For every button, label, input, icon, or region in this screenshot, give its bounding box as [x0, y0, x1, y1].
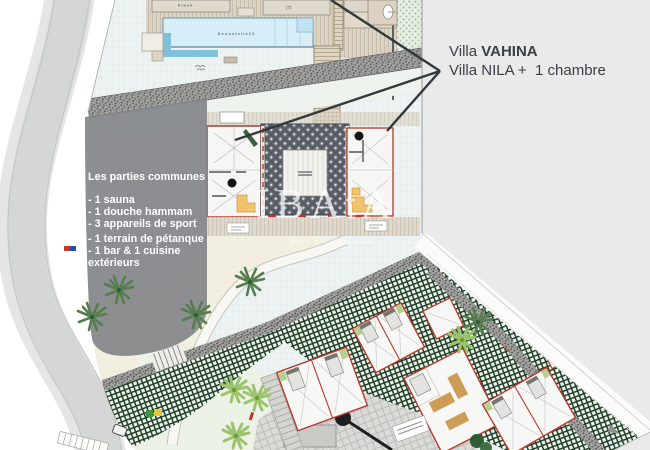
svg-text:Villa NILA + 1 chambre: Villa NILA + 1 chambre [449, 62, 606, 79]
svg-text:D e c o s t e l l e 2 3: D e c o s t e l l e 2 3 [218, 31, 255, 36]
svg-text:(7): (7) [286, 5, 292, 10]
svg-text:- 1 douche hammam: - 1 douche hammam [88, 206, 192, 218]
svg-text:extérieurs: extérieurs [88, 257, 140, 269]
svg-text:Les parties communes: Les parties communes [88, 171, 205, 183]
svg-text:k l a s k: k l a s k [178, 3, 193, 8]
svg-text:- 3 appareils de sport: - 3 appareils de sport [88, 218, 197, 230]
svg-text:IBAïA: IBAïA [256, 182, 397, 228]
svg-text:Villa VAHINA: Villa VAHINA [449, 43, 538, 60]
svg-text:- 1 terrain de pétanque: - 1 terrain de pétanque [88, 233, 204, 245]
svg-text:- 1 bar & 1 cuisine: - 1 bar & 1 cuisine [88, 245, 180, 257]
svg-text:Real Estate House: Real Estate House [290, 236, 373, 246]
svg-text:- 1 sauna: - 1 sauna [88, 194, 136, 206]
